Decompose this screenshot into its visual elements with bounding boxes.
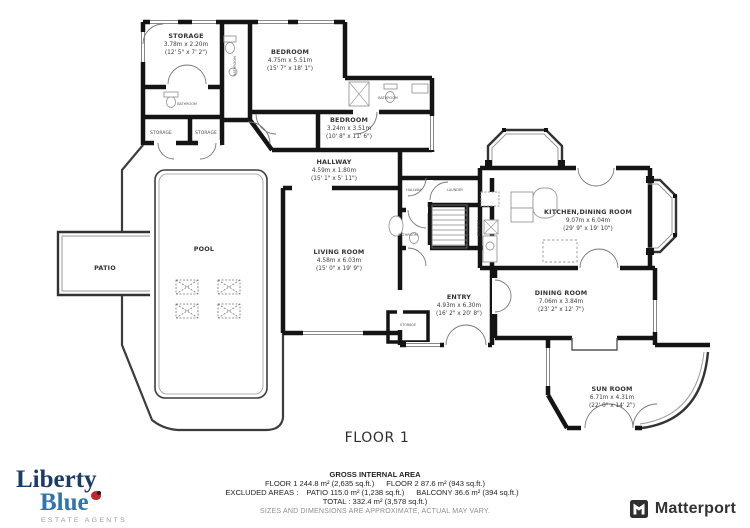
room-name: SUN ROOM xyxy=(591,385,632,393)
room-imperial: (12' 5" x 7' 2") xyxy=(165,50,207,56)
room-imperial: (29' 9" x 19' 10") xyxy=(563,226,613,232)
room-imperial: (22' 0" x 14' 2") xyxy=(589,403,635,409)
room-label-pool: POOL xyxy=(194,245,214,253)
small-label-bathroom: BATHROOM xyxy=(378,96,398,100)
room-label-kitchen-dining: KITCHEN,DINING ROOM 9.07m x 6.04m (29' 9… xyxy=(544,208,632,232)
room-imperial: (15' 0" x 19' 9") xyxy=(316,266,362,272)
pool-furniture xyxy=(176,280,240,318)
room-name: BEDROOM xyxy=(271,48,309,56)
matterport-text: Matterport xyxy=(655,500,736,518)
room-label-sun-room: SUN ROOM 6.71m x 4.31m (22' 0" x 14' 2") xyxy=(589,385,635,409)
blue-text: Blue xyxy=(40,489,89,516)
terrace-outline xyxy=(122,145,283,430)
small-label-bathroom: BATHROOM xyxy=(233,56,237,76)
room-name: HALLWAY xyxy=(316,158,351,166)
small-label-laundry: LAUNDRY xyxy=(447,188,464,192)
room-name: DINING ROOM xyxy=(535,289,588,297)
small-label-storage: STORAGE xyxy=(195,130,217,136)
room-label-storage: STORAGE 3.78m x 2.20m (12' 5" x 7' 2") xyxy=(164,32,209,56)
excluded-label: EXCLUDED AREAS : xyxy=(225,489,298,498)
floor-plan: STORAGE 3.78m x 2.20m (12' 5" x 7' 2") B… xyxy=(0,0,750,460)
pool-outline xyxy=(155,170,267,398)
stairway xyxy=(432,205,467,248)
room-label-bedroom1: BEDROOM 4.75m x 5.51m (15' 7" x 18' 1") xyxy=(267,48,313,72)
room-metric: 3.24m x 3.51m xyxy=(327,126,372,132)
small-label-storage: STORAGE xyxy=(476,220,480,236)
room-metric: 4.58m x 6.03m xyxy=(317,258,362,264)
room-label-entry: ENTRY 4.93m x 6.30m (16' 2" x 20' 8") xyxy=(436,293,482,317)
estate-agents-text: ESTATE AGENTS xyxy=(41,517,136,524)
sunroom-curve xyxy=(572,338,708,428)
room-label-living-room: LIVING ROOM 4.58m x 6.03m (15' 0" x 19' … xyxy=(314,248,365,272)
room-name: LIVING ROOM xyxy=(314,248,365,256)
balcony-area: BALCONY 36.6 m² (394 sq.ft.) xyxy=(416,489,518,498)
room-metric: 9.07m x 6.04m xyxy=(566,218,611,224)
matterport-logo: Matterport xyxy=(629,499,736,519)
room-metric: 4.75m x 5.51m xyxy=(268,58,313,64)
room-name: BEDROOM xyxy=(330,116,368,124)
small-label-bathroom: BATHROOM xyxy=(177,102,197,106)
room-metric: 4.59m x 1.80m xyxy=(312,168,357,174)
room-metric: 3.78m x 2.20m xyxy=(164,42,209,48)
ladybug-icon xyxy=(91,491,101,500)
floor-title: FLOOR 1 xyxy=(345,430,410,446)
room-imperial: (23' 2" x 12' 7") xyxy=(538,307,584,313)
room-imperial: (15' 7" x 18' 1") xyxy=(267,66,313,72)
small-label-bathroom: BATHROOM xyxy=(398,233,418,237)
room-name: STORAGE xyxy=(168,32,203,40)
room-metric: 7.06m x 3.84m xyxy=(539,299,584,305)
room-imperial: (16' 2" x 20' 8") xyxy=(436,311,482,317)
walls xyxy=(143,22,710,428)
room-name: KITCHEN,DINING ROOM xyxy=(544,208,632,216)
liberty-blue-logo: Liberty Blue ESTATE AGENTS xyxy=(16,468,136,524)
small-label-storage: STORAGE xyxy=(150,130,172,136)
room-metric: 6.71m x 4.31m xyxy=(590,395,635,401)
matterport-icon xyxy=(629,499,649,519)
room-label-dining-room: DINING ROOM 7.06m x 3.84m (23' 2" x 12' … xyxy=(535,289,588,313)
small-label-hallway: HALLWAY xyxy=(406,188,423,192)
room-label-patio: PATIO xyxy=(94,264,116,272)
room-label-hallway: HALLWAY 4.59m x 1.80m (15' 1" x 5' 11") xyxy=(311,158,357,182)
room-imperial: (10' 8" x 11' 6") xyxy=(326,134,372,140)
room-name: ENTRY xyxy=(447,293,471,301)
room-metric: 4.93m x 6.30m xyxy=(437,303,482,309)
room-label-bedroom2: BEDROOM 3.24m x 3.51m (10' 8" x 11' 6") xyxy=(326,116,372,140)
floorplan-svg: STORAGE 3.78m x 2.20m (12' 5" x 7' 2") B… xyxy=(0,0,750,460)
room-imperial: (15' 1" x 5' 11") xyxy=(311,176,357,182)
small-label-storage: STORAGE xyxy=(400,323,416,327)
